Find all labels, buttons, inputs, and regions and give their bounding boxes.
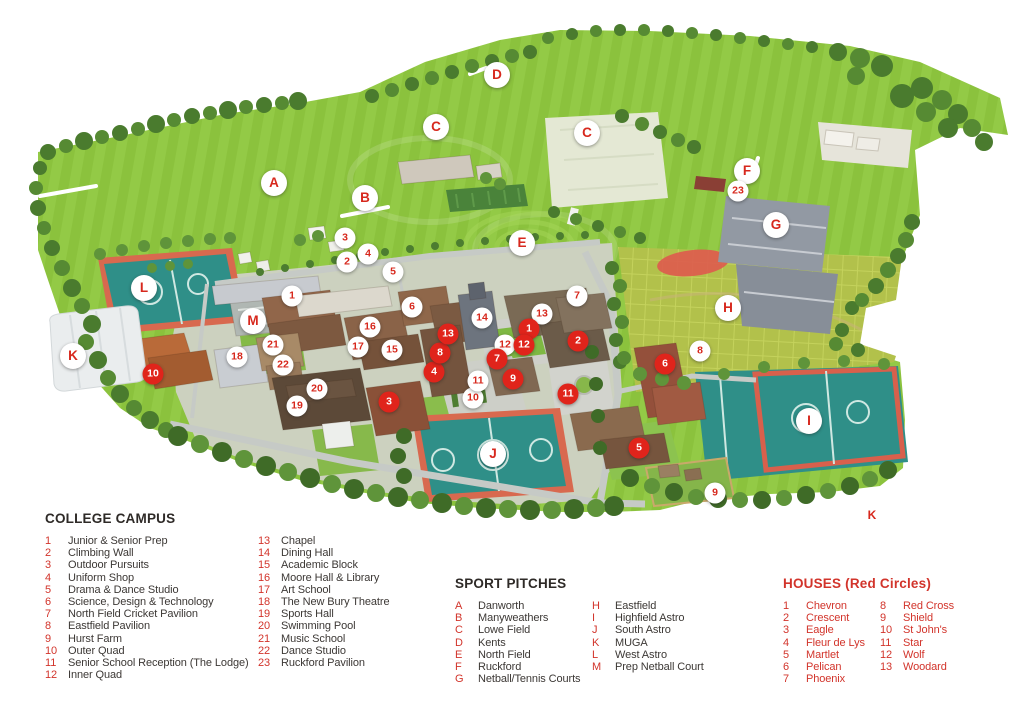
legend-entry-key: 8 bbox=[880, 600, 903, 612]
legend-entry: 10St John's bbox=[880, 624, 954, 636]
marker-layer: ABCCDEFGHIJKLM12345678910111213141516171… bbox=[0, 0, 1024, 530]
legend-entry-label: MUGA bbox=[615, 637, 648, 649]
legend-entry-key: 17 bbox=[258, 584, 281, 596]
legend-entry: BManyweathers bbox=[455, 612, 592, 624]
legend-column: 13Chapel14Dining Hall15Academic Block16M… bbox=[258, 535, 389, 681]
legend-entry-key: 6 bbox=[45, 596, 68, 608]
legend-entry-key: 15 bbox=[258, 559, 281, 571]
legend-college-campus-columns: 1Junior & Senior Prep2Climbing Wall3Outd… bbox=[45, 535, 389, 681]
legend-entry-label: Fleur de Lys bbox=[806, 637, 865, 649]
legend-entry-key: 5 bbox=[783, 649, 806, 661]
legend-entry-key: 3 bbox=[45, 559, 68, 571]
legend-entry: 15Academic Block bbox=[258, 559, 389, 571]
map-marker-campus-15: 15 bbox=[382, 340, 403, 361]
legend-entry-label: Shield bbox=[903, 612, 933, 624]
legend-entry-label: Climbing Wall bbox=[68, 547, 134, 559]
legend-entry: 4Uniform Shop bbox=[45, 572, 258, 584]
legend-entry: 13Chapel bbox=[258, 535, 389, 547]
map-marker-pitch-E: E bbox=[509, 230, 535, 256]
legend-entry-key: 18 bbox=[258, 596, 281, 608]
legend-entry: 5Martlet bbox=[783, 649, 880, 661]
legend-entry-key: D bbox=[455, 637, 478, 649]
legend-entry-label: Academic Block bbox=[281, 559, 358, 571]
legend-entry: 2Climbing Wall bbox=[45, 547, 258, 559]
map-marker-house-4: 4 bbox=[424, 362, 445, 383]
legend-entry-label: Eastfield bbox=[615, 600, 656, 612]
legend-entry-label: Netball/Tennis Courts bbox=[478, 673, 580, 685]
legend-entry-label: St John's bbox=[903, 624, 947, 636]
legend-entry: 11Star bbox=[880, 637, 954, 649]
legend-entry-label: Senior School Reception (The Lodge) bbox=[68, 657, 249, 669]
legend-entry: KMUGA bbox=[592, 637, 704, 649]
legend-entry-label: Drama & Dance Studio bbox=[68, 584, 179, 596]
legend-entry: 8Eastfield Pavilion bbox=[45, 620, 258, 632]
legend-entry: 10Outer Quad bbox=[45, 645, 258, 657]
legend-entry-label: Science, Design & Technology bbox=[68, 596, 214, 608]
map-marker-campus-23: 23 bbox=[728, 181, 749, 202]
legend-entry-label: Art School bbox=[281, 584, 331, 596]
legend-entry: 9Shield bbox=[880, 612, 954, 624]
map-marker-campus-20: 20 bbox=[307, 379, 328, 400]
legend-entry-label: Inner Quad bbox=[68, 669, 122, 681]
legend-entry-label: Eastfield Pavilion bbox=[68, 620, 150, 632]
legend-entry-label: Eagle bbox=[806, 624, 834, 636]
map-marker-pitch-C: C bbox=[574, 120, 600, 146]
legend-entry-key: 5 bbox=[45, 584, 68, 596]
map-marker-house-3: 3 bbox=[379, 392, 400, 413]
map-marker-house-6: 6 bbox=[655, 354, 676, 375]
legend-entry-label: Lowe Field bbox=[478, 624, 530, 636]
legend-entry: 11Senior School Reception (The Lodge) bbox=[45, 657, 258, 669]
legend-entry-key: 13 bbox=[880, 661, 903, 673]
legend-sport-pitches-title: SPORT PITCHES bbox=[455, 576, 704, 591]
legend-entry-label: Kents bbox=[478, 637, 506, 649]
legend-entry: 21Music School bbox=[258, 633, 389, 645]
legend-entry: HEastfield bbox=[592, 600, 704, 612]
legend-entry: 6Pelican bbox=[783, 661, 880, 673]
map-marker-house-12: 12 bbox=[514, 335, 535, 356]
map-marker-house-10: 10 bbox=[143, 364, 164, 385]
legend-entry: 9Hurst Farm bbox=[45, 633, 258, 645]
legend-entry-label: Woodard bbox=[903, 661, 947, 673]
map-marker-house-5: 5 bbox=[629, 438, 650, 459]
map-marker-house-13: 13 bbox=[438, 324, 459, 345]
legend-entry-label: Chevron bbox=[806, 600, 847, 612]
legend-entry: 5Drama & Dance Studio bbox=[45, 584, 258, 596]
legend-entry: 8Red Cross bbox=[880, 600, 954, 612]
legend-entry-key: A bbox=[455, 600, 478, 612]
map-marker-pitch-J: J bbox=[480, 441, 506, 467]
legend-entry-label: The New Bury Theatre bbox=[281, 596, 389, 608]
legend-entry: 16Moore Hall & Library bbox=[258, 572, 389, 584]
map-marker-campus-21: 21 bbox=[263, 335, 284, 356]
legend-entry: DKents bbox=[455, 637, 592, 649]
legend-entry-label: Star bbox=[903, 637, 923, 649]
legend-entry-key: 2 bbox=[45, 547, 68, 559]
legend-entry-label: Phoenix bbox=[806, 673, 845, 685]
map-marker-pitch-C: C bbox=[423, 114, 449, 140]
legend-entry: 17Art School bbox=[258, 584, 389, 596]
map-marker-house-11: 11 bbox=[558, 384, 579, 405]
legend-houses-columns: 1Chevron2Crescent3Eagle4Fleur de Lys5Mar… bbox=[783, 600, 954, 685]
legend-entry-key: 11 bbox=[880, 637, 903, 649]
legend-entry: ENorth Field bbox=[455, 649, 592, 661]
legend-entry-key: 8 bbox=[45, 620, 68, 632]
legend-entry-key: 20 bbox=[258, 620, 281, 632]
legend-entry: GNetball/Tennis Courts bbox=[455, 673, 592, 685]
legend-college-campus: COLLEGE CAMPUS 1Junior & Senior Prep2Cli… bbox=[45, 511, 389, 681]
legend-entry: 12Inner Quad bbox=[45, 669, 258, 681]
legend-entry-key: E bbox=[455, 649, 478, 661]
legend-entry-label: Prep Netball Court bbox=[615, 661, 704, 673]
legend-entry-label: Moore Hall & Library bbox=[281, 572, 379, 584]
map-marker-campus-16: 16 bbox=[360, 317, 381, 338]
legend-entry: 6Science, Design & Technology bbox=[45, 596, 258, 608]
legend-column: 1Junior & Senior Prep2Climbing Wall3Outd… bbox=[45, 535, 258, 681]
legend-column: 8Red Cross9Shield10St John's11Star12Wolf… bbox=[880, 600, 954, 685]
legend-entry: 18The New Bury Theatre bbox=[258, 596, 389, 608]
legend-entry: 3Outdoor Pursuits bbox=[45, 559, 258, 571]
legend-houses-title: HOUSES (Red Circles) bbox=[783, 576, 954, 591]
legend-entry-key: 4 bbox=[45, 572, 68, 584]
legend-entry-label: Swimming Pool bbox=[281, 620, 356, 632]
legend-entry: IHighfield Astro bbox=[592, 612, 704, 624]
legend-entry-label: Manyweathers bbox=[478, 612, 548, 624]
legend-entry: 2Crescent bbox=[783, 612, 880, 624]
legend-entry-label: South Astro bbox=[615, 624, 671, 636]
legend-entry: 4Fleur de Lys bbox=[783, 637, 880, 649]
map-marker-pitch-I: I bbox=[796, 408, 822, 434]
legend-entry-label: Pelican bbox=[806, 661, 841, 673]
map-marker-house-2: 2 bbox=[568, 331, 589, 352]
legend-entry: JSouth Astro bbox=[592, 624, 704, 636]
map-marker-campus-7: 7 bbox=[567, 286, 588, 307]
legend-entry-key: 7 bbox=[783, 673, 806, 685]
legend-entry-label: Red Cross bbox=[903, 600, 954, 612]
legend-entry-label: Ruckford bbox=[478, 661, 521, 673]
legend-entry: 14Dining Hall bbox=[258, 547, 389, 559]
legend-entry-key: H bbox=[592, 600, 615, 612]
legend-sport-pitches: SPORT PITCHES ADanworthBManyweathersCLow… bbox=[455, 576, 704, 685]
map-marker-campus-17: 17 bbox=[348, 337, 369, 358]
legend-entry-label: Uniform Shop bbox=[68, 572, 134, 584]
legend-entry-label: Chapel bbox=[281, 535, 315, 547]
legend-entry-key: 3 bbox=[783, 624, 806, 636]
map-marker-campus-1: 1 bbox=[282, 286, 303, 307]
legend-entry-label: Hurst Farm bbox=[68, 633, 122, 645]
legend-entry: MPrep Netball Court bbox=[592, 661, 704, 673]
legend-entry-label: Crescent bbox=[806, 612, 849, 624]
map-marker-campus-5: 5 bbox=[383, 262, 404, 283]
legend-entry: CLowe Field bbox=[455, 624, 592, 636]
legend-entry: FRuckford bbox=[455, 661, 592, 673]
legend-houses: HOUSES (Red Circles) 1Chevron2Crescent3E… bbox=[783, 576, 954, 685]
map-marker-campus-2: 2 bbox=[337, 252, 358, 273]
legend-entry-key: 16 bbox=[258, 572, 281, 584]
legend-entry-label: Highfield Astro bbox=[615, 612, 684, 624]
map-label-K: K bbox=[868, 509, 877, 521]
legend-entry-label: Dining Hall bbox=[281, 547, 333, 559]
legend-entry-key: 21 bbox=[258, 633, 281, 645]
map-marker-campus-9: 9 bbox=[705, 483, 726, 504]
legend-entry: 7North Field Cricket Pavilion bbox=[45, 608, 258, 620]
legend-entry-label: Outdoor Pursuits bbox=[68, 559, 149, 571]
legend-entry-key: G bbox=[455, 673, 478, 685]
legend-entry-label: Ruckford Pavilion bbox=[281, 657, 365, 669]
legend-entry: ADanworth bbox=[455, 600, 592, 612]
map-marker-campus-14: 14 bbox=[472, 308, 493, 329]
map-marker-campus-4: 4 bbox=[358, 244, 379, 265]
legend-entry-label: North Field Cricket Pavilion bbox=[68, 608, 198, 620]
legend-entry-key: 12 bbox=[45, 669, 68, 681]
map-marker-campus-18: 18 bbox=[227, 347, 248, 368]
legend-entry-key: J bbox=[592, 624, 615, 636]
legend-entry-label: North Field bbox=[478, 649, 531, 661]
legend-entry: 3Eagle bbox=[783, 624, 880, 636]
legend-column: 1Chevron2Crescent3Eagle4Fleur de Lys5Mar… bbox=[783, 600, 880, 685]
legend-entry: 7Phoenix bbox=[783, 673, 880, 685]
legend-entry: LWest Astro bbox=[592, 649, 704, 661]
map-marker-pitch-L: L bbox=[131, 275, 157, 301]
map-marker-campus-19: 19 bbox=[287, 396, 308, 417]
legend-college-campus-title: COLLEGE CAMPUS bbox=[45, 511, 389, 526]
legend-entry-key: K bbox=[592, 637, 615, 649]
legend-entry-label: West Astro bbox=[615, 649, 667, 661]
legend-entry-label: Outer Quad bbox=[68, 645, 124, 657]
legend-entry-label: Martlet bbox=[806, 649, 839, 661]
map-marker-house-8: 8 bbox=[430, 343, 451, 364]
legend-entry: 1Junior & Senior Prep bbox=[45, 535, 258, 547]
legend-entry: 22Dance Studio bbox=[258, 645, 389, 657]
legend-sport-pitches-columns: ADanworthBManyweathersCLowe FieldDKentsE… bbox=[455, 600, 704, 685]
legend-column: HEastfieldIHighfield AstroJSouth AstroKM… bbox=[592, 600, 704, 685]
campus-map-page: ABCCDEFGHIJKLM12345678910111213141516171… bbox=[0, 0, 1024, 706]
map-marker-pitch-D: D bbox=[484, 62, 510, 88]
legend-entry-key: M bbox=[592, 661, 615, 673]
legend-entry-key: 14 bbox=[258, 547, 281, 559]
legend-entry-key: 12 bbox=[880, 649, 903, 661]
legend-entry: 13Woodard bbox=[880, 661, 954, 673]
legend-entry-key: F bbox=[455, 661, 478, 673]
map-marker-house-7: 7 bbox=[487, 349, 508, 370]
legend-entry: 1Chevron bbox=[783, 600, 880, 612]
legend-entry-label: Junior & Senior Prep bbox=[68, 535, 168, 547]
map-marker-pitch-M: M bbox=[240, 308, 266, 334]
legend-entry: 23Ruckford Pavilion bbox=[258, 657, 389, 669]
map-marker-pitch-A: A bbox=[261, 170, 287, 196]
legend-entry-key: 19 bbox=[258, 608, 281, 620]
legend-entry: 20Swimming Pool bbox=[258, 620, 389, 632]
legend-entry-label: Sports Hall bbox=[281, 608, 334, 620]
map-marker-pitch-H: H bbox=[715, 295, 741, 321]
map-marker-pitch-G: G bbox=[763, 212, 789, 238]
legend-entry-key: 2 bbox=[783, 612, 806, 624]
legend-entry-label: Dance Studio bbox=[281, 645, 346, 657]
map-marker-campus-3: 3 bbox=[335, 228, 356, 249]
map-marker-pitch-K: K bbox=[60, 343, 86, 369]
map-marker-campus-11: 11 bbox=[468, 371, 489, 392]
legend-entry-key: 7 bbox=[45, 608, 68, 620]
map-marker-house-9: 9 bbox=[503, 369, 524, 390]
map-marker-campus-22: 22 bbox=[273, 355, 294, 376]
legend-entry-key: 10 bbox=[880, 624, 903, 636]
map-marker-pitch-B: B bbox=[352, 185, 378, 211]
legend-entry-key: 1 bbox=[45, 535, 68, 547]
legend-entry-key: 4 bbox=[783, 637, 806, 649]
legend-entry-key: C bbox=[455, 624, 478, 636]
map-marker-campus-6: 6 bbox=[402, 297, 423, 318]
legend-entry-label: Danworth bbox=[478, 600, 524, 612]
legend-entry-key: 11 bbox=[45, 657, 68, 669]
legend-entry: 19Sports Hall bbox=[258, 608, 389, 620]
legend-column: ADanworthBManyweathersCLowe FieldDKentsE… bbox=[455, 600, 592, 685]
legend-entry-key: 22 bbox=[258, 645, 281, 657]
legend-entry-key: 6 bbox=[783, 661, 806, 673]
legend-entry-key: 23 bbox=[258, 657, 281, 669]
legend-entry-key: 13 bbox=[258, 535, 281, 547]
legend-entry-key: 1 bbox=[783, 600, 806, 612]
legend-entry-key: B bbox=[455, 612, 478, 624]
legend-entry-key: L bbox=[592, 649, 615, 661]
map-marker-campus-8: 8 bbox=[690, 341, 711, 362]
legend-entry-key: 9 bbox=[880, 612, 903, 624]
legend-entry-key: I bbox=[592, 612, 615, 624]
legend-entry-key: 9 bbox=[45, 633, 68, 645]
legend-entry-label: Wolf bbox=[903, 649, 924, 661]
legend-entry: 12Wolf bbox=[880, 649, 954, 661]
legend-entry-key: 10 bbox=[45, 645, 68, 657]
legend-entry-label: Music School bbox=[281, 633, 345, 645]
